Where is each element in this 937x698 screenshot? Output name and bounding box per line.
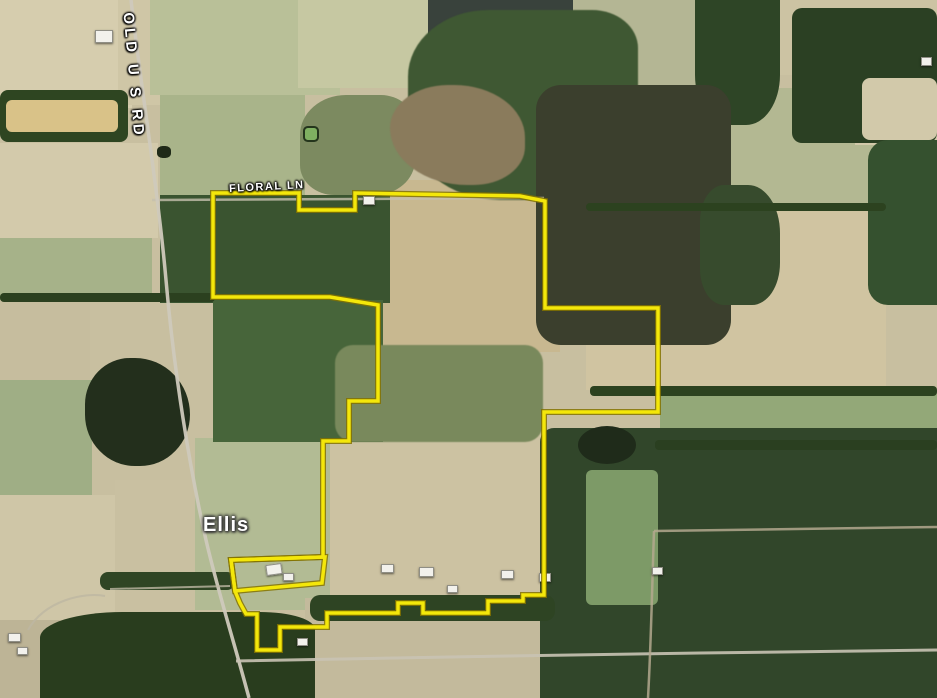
satellite-map[interactable]: OLD U S RD FLORAL LN Ellis bbox=[0, 0, 937, 698]
parcel-boundary-outline bbox=[213, 193, 658, 650]
place-label-ellis: Ellis bbox=[203, 514, 249, 537]
parcel-boundary bbox=[213, 193, 658, 650]
